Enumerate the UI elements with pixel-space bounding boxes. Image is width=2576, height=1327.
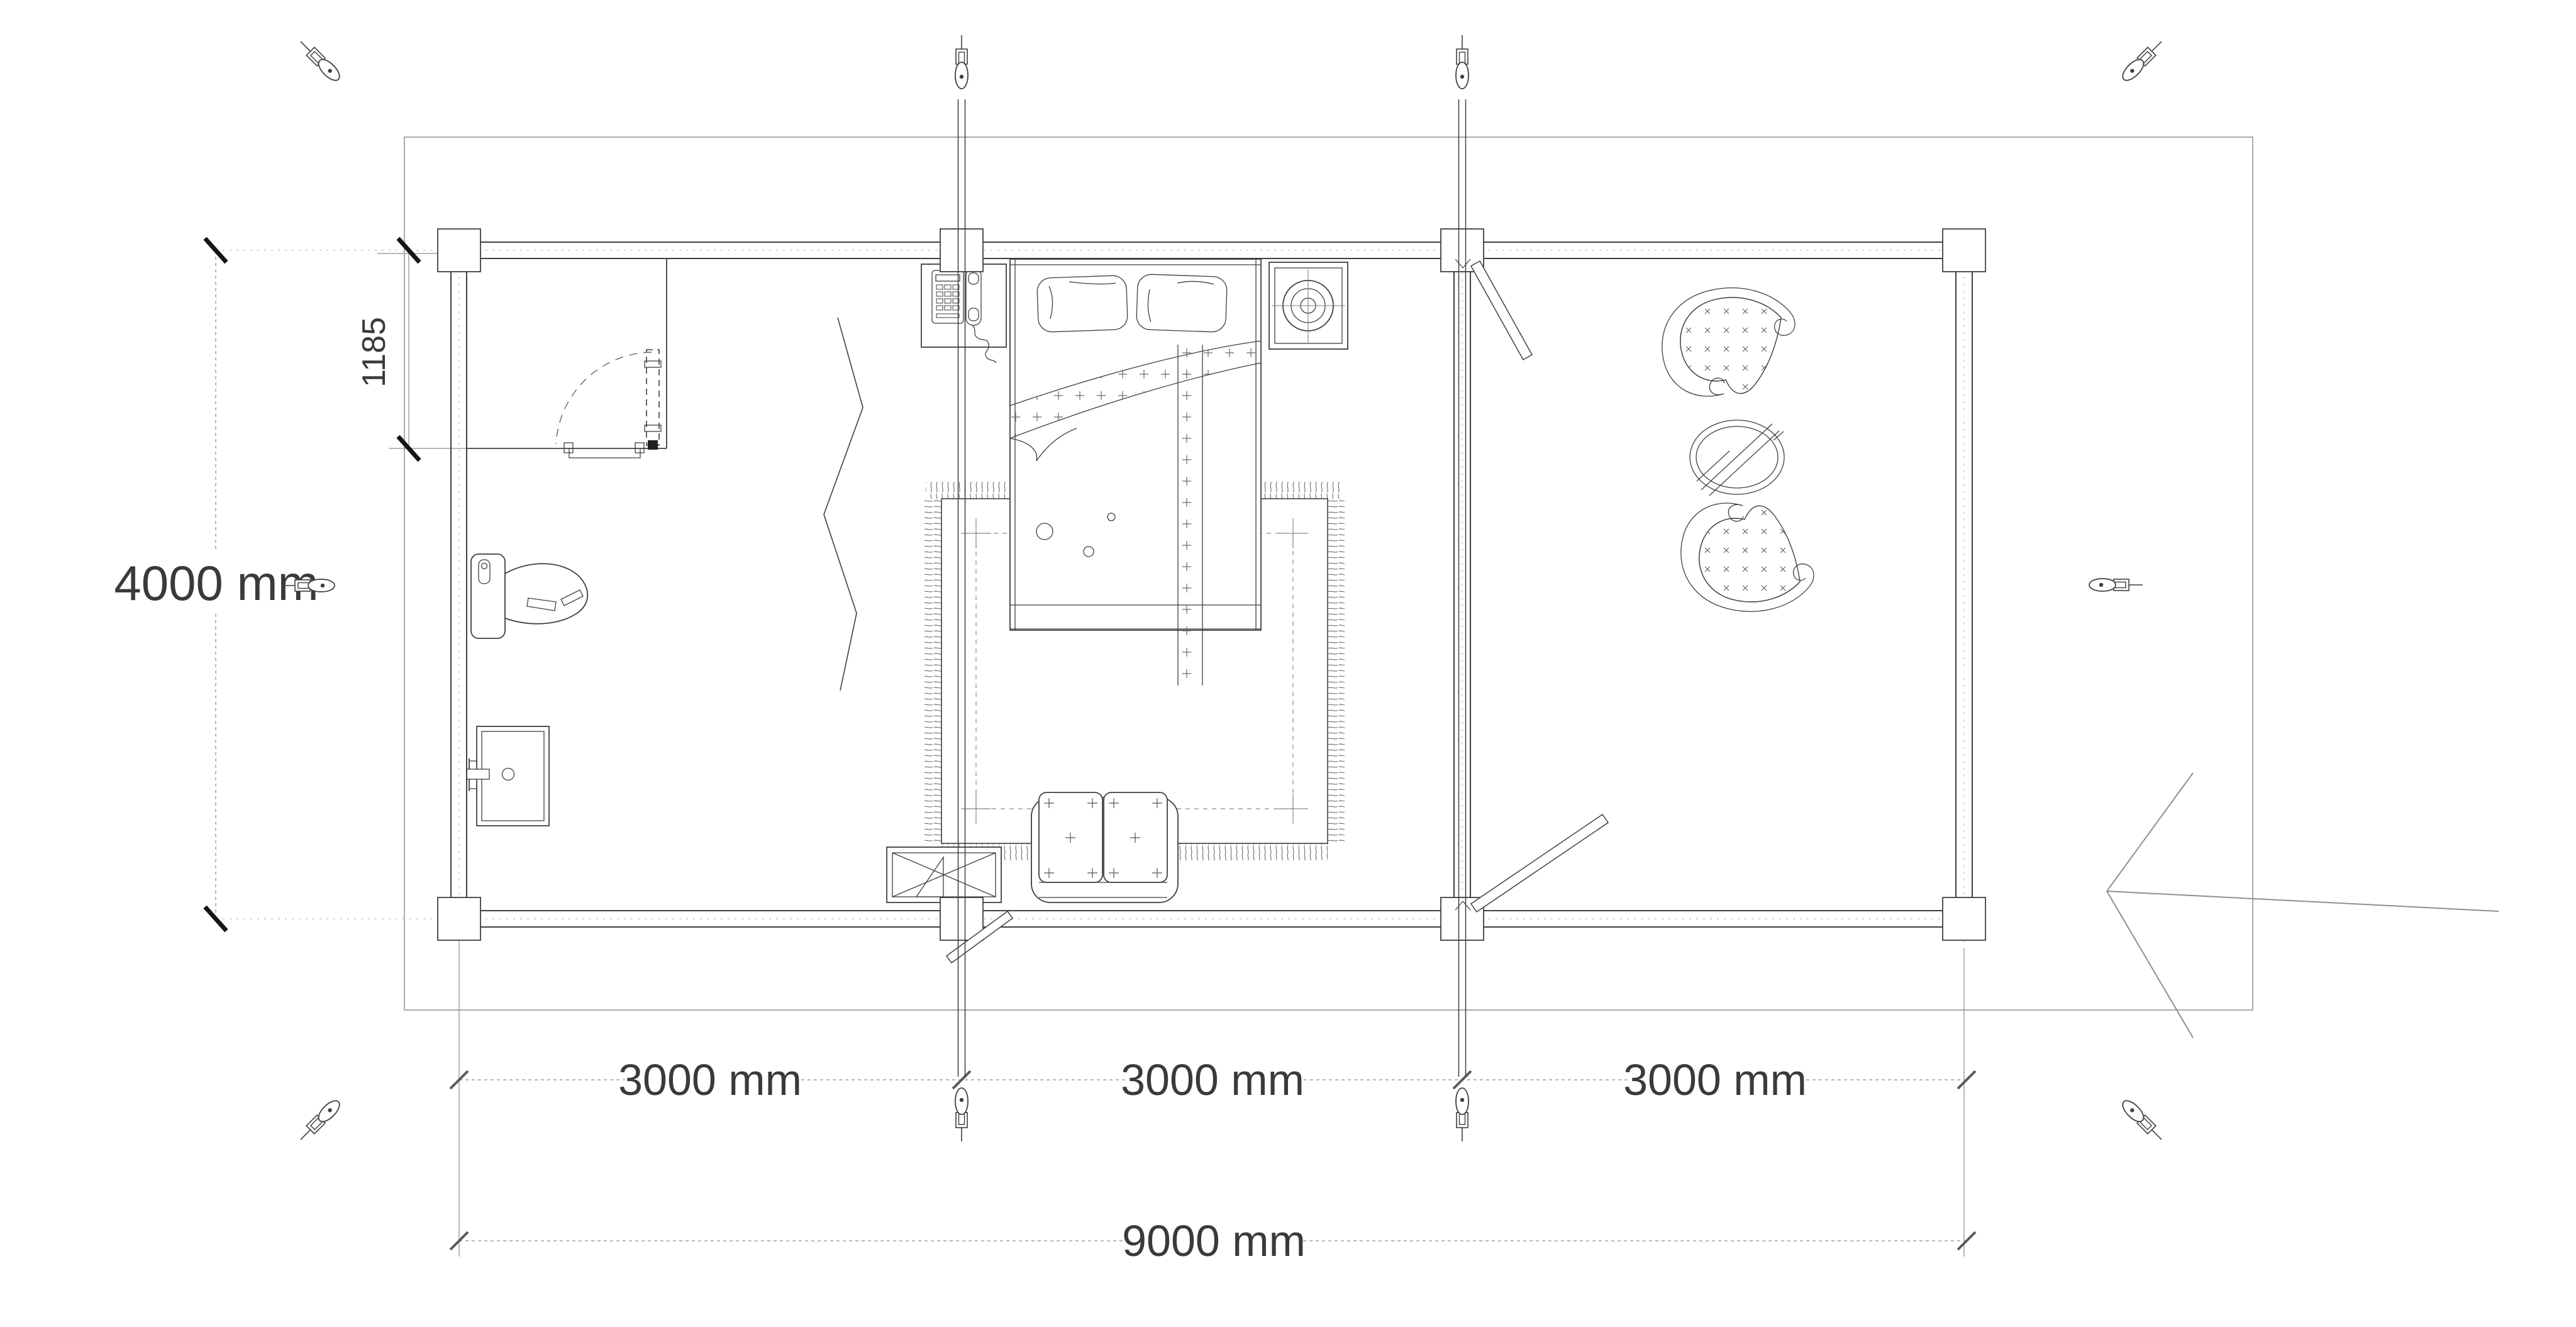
door-swing-arc xyxy=(556,352,652,444)
dim-span-2-label: 3000 mm xyxy=(1121,1055,1304,1104)
entrance-arrow-icon xyxy=(2107,773,2499,1038)
turnbuckle-screw-icon xyxy=(296,37,343,84)
rug-fringe-right xyxy=(1328,499,1345,843)
rug-fringe-top-right xyxy=(1261,482,1343,499)
lounge-chair-top xyxy=(1662,288,1795,396)
turnbuckle-screw-icon xyxy=(2119,37,2166,84)
door-hinge xyxy=(648,440,658,450)
bed-runner xyxy=(1178,345,1202,686)
turnbuckle-screw-icon xyxy=(955,35,968,89)
floor-plan-canvas: 4000 mm 1185 3000 mm 3000 mm 3000 mm 900… xyxy=(0,0,2576,1327)
dim-span-3-label: 3000 mm xyxy=(1623,1055,1807,1104)
closet-door xyxy=(556,350,661,450)
nightstand-telephone xyxy=(921,264,1006,363)
nightstand-lamp xyxy=(1269,262,1348,349)
closet xyxy=(467,258,667,458)
sofa xyxy=(1031,792,1178,902)
turnbuckle-screw-icon xyxy=(955,1088,968,1141)
dim-depth-label: 4000 mm xyxy=(114,555,318,611)
lounge-chair-bottom xyxy=(1681,503,1814,611)
turnbuckle-screw-icon xyxy=(1456,1088,1468,1141)
dim-closet-label: 1185 xyxy=(356,317,392,387)
zigzag-symbol xyxy=(824,318,863,691)
dim-span-1-label: 3000 mm xyxy=(618,1055,802,1104)
sink xyxy=(467,726,549,826)
table xyxy=(887,847,1001,902)
rug-fringe-top-left xyxy=(926,482,1010,499)
double-bed xyxy=(1010,259,1261,686)
turnbuckle-screw-icon xyxy=(296,1097,343,1144)
floor-plan-drawing: 4000 mm 1185 3000 mm 3000 mm 3000 mm 900… xyxy=(0,0,2576,1327)
door-leaf-bottom xyxy=(1471,814,1608,912)
partition-door-leaves xyxy=(1455,259,1608,912)
turnbuckle-screw-icon xyxy=(1456,35,1468,89)
rug-fringe-left xyxy=(924,499,941,843)
round-side-table xyxy=(1690,420,1784,496)
pillow xyxy=(1136,274,1228,333)
door-leaf-top xyxy=(1471,261,1532,360)
turnbuckle-screw-icon xyxy=(2089,579,2143,591)
toilet xyxy=(471,554,587,638)
dim-width-label: 9000 mm xyxy=(1122,1216,1306,1265)
pillow xyxy=(1037,275,1128,333)
turnbuckle-screw-icon xyxy=(2119,1097,2166,1144)
